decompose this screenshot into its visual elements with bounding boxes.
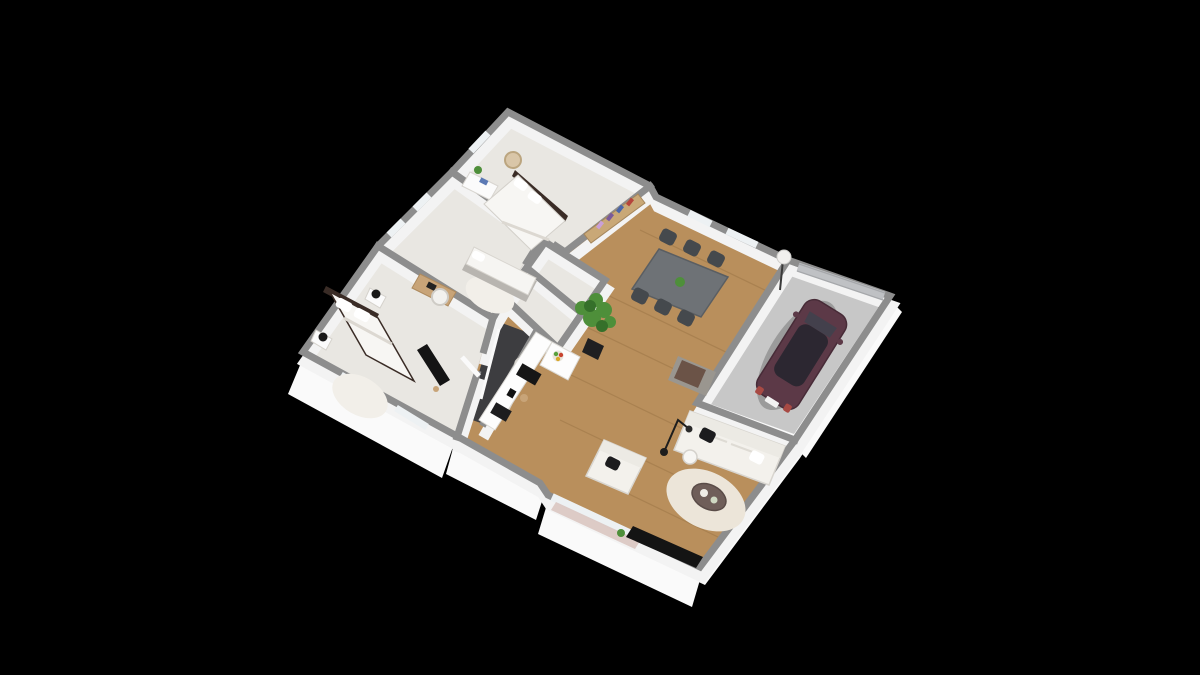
chair-bedroom-top bbox=[505, 152, 521, 168]
desk-chair bbox=[432, 289, 448, 305]
coffee-table-plate-2 bbox=[711, 497, 718, 504]
lamp-nightstand-1 bbox=[372, 290, 381, 299]
canvas bbox=[0, 0, 1200, 675]
coffee-table-plate-1 bbox=[700, 489, 708, 497]
side-table bbox=[683, 450, 697, 464]
floorplan-3d-render bbox=[0, 0, 1200, 675]
tv-stand-leg bbox=[433, 386, 439, 392]
lowboard-plant bbox=[617, 529, 625, 537]
lamp-nightstand-2 bbox=[319, 333, 328, 342]
fruit-bowl bbox=[553, 351, 564, 362]
table-centerpiece bbox=[675, 277, 685, 287]
cutting-board bbox=[520, 394, 528, 402]
dresser-plant bbox=[474, 166, 482, 174]
